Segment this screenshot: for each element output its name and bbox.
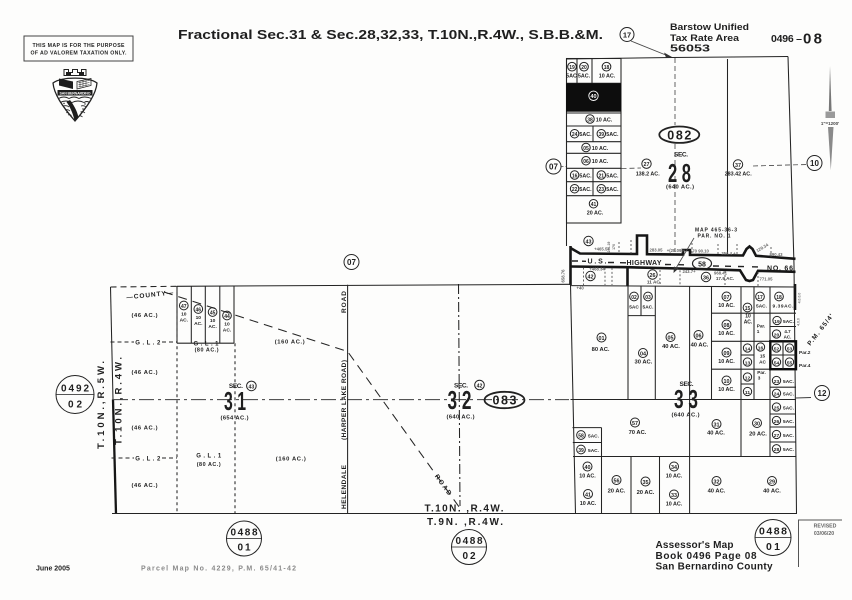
svg-text:54: 54 — [774, 360, 780, 366]
svg-text:12: 12 — [745, 375, 751, 381]
svg-text:5AC.: 5AC. — [606, 173, 619, 179]
svg-text:Assessor's Map: Assessor's Map — [656, 540, 734, 551]
svg-text:5AC.: 5AC. — [606, 132, 619, 138]
svg-text:5AC.: 5AC. — [783, 392, 794, 398]
svg-text:06: 06 — [696, 333, 702, 339]
svg-text:58: 58 — [578, 433, 584, 439]
svg-text:41: 41 — [585, 492, 591, 498]
svg-text:35: 35 — [643, 480, 649, 486]
svg-text:Tax Rate Area: Tax Rate Area — [670, 33, 740, 43]
svg-text:57: 57 — [632, 421, 638, 427]
svg-text:NO. 66: NO. 66 — [767, 266, 793, 273]
svg-text:20: 20 — [774, 332, 780, 338]
svg-text:REVISED: REVISED — [814, 524, 837, 530]
svg-text:07: 07 — [549, 163, 558, 172]
svg-text:14: 14 — [745, 346, 751, 352]
svg-text:5AC.: 5AC. — [588, 433, 599, 439]
svg-text:(HARPER LAKE ROAD): (HARPER LAKE ROAD) — [341, 360, 348, 440]
svg-text:20 AC.: 20 AC. — [608, 489, 626, 495]
svg-text:10 AC.: 10 AC. — [592, 159, 609, 165]
svg-text:32: 32 — [714, 479, 720, 485]
svg-text:22: 22 — [572, 187, 578, 193]
svg-text:(46 AC.): (46 AC.) — [132, 483, 158, 489]
svg-text:38: 38 — [587, 117, 593, 123]
svg-text:10: 10 — [724, 379, 730, 385]
svg-text:G.L.2: G.L.2 — [135, 456, 161, 462]
svg-text:17.9 AC.: 17.9 AC. — [716, 276, 734, 281]
svg-text:20 AC.: 20 AC. — [749, 432, 767, 438]
svg-text:10 AC.: 10 AC. — [580, 501, 597, 507]
svg-text:+(28.09)+: +(28.09)+ — [667, 248, 686, 253]
svg-text:3 2: 3 2 — [448, 385, 472, 415]
svg-text:5AC.: 5AC. — [783, 433, 794, 439]
svg-text:30 AC.: 30 AC. — [634, 359, 652, 365]
svg-text:(80 AC.): (80 AC.) — [195, 348, 219, 354]
svg-text:45: 45 — [210, 310, 216, 316]
svg-text:24: 24 — [572, 132, 578, 138]
svg-text:11: 11 — [745, 390, 750, 396]
svg-text:PAR. NO. 1: PAR. NO. 1 — [698, 234, 731, 240]
svg-text:Par.: Par. — [757, 370, 766, 375]
svg-text:5AC.: 5AC. — [783, 319, 794, 325]
svg-text:10 AC.: 10 AC. — [579, 474, 596, 480]
svg-text:40: 40 — [591, 94, 597, 100]
svg-text:June 2005: June 2005 — [36, 566, 70, 573]
svg-text:0488: 0488 — [231, 528, 258, 539]
svg-text:283.42 AC.: 283.42 AC. — [725, 172, 753, 178]
svg-text:5AC.: 5AC. — [783, 405, 794, 411]
svg-text:AC.: AC. — [784, 335, 792, 340]
svg-text:47: 47 — [181, 304, 187, 310]
svg-text:20 AC.: 20 AC. — [637, 490, 655, 496]
svg-text:29: 29 — [769, 479, 775, 485]
svg-text:18: 18 — [604, 65, 610, 71]
svg-text:10: 10 — [181, 312, 187, 318]
svg-text:01: 01 — [599, 336, 605, 342]
svg-text:T.9N. ,R.4W.: T.9N. ,R.4W. — [427, 517, 503, 528]
svg-text:5AC.: 5AC. — [643, 305, 654, 311]
svg-text:(640 AC.): (640 AC.) — [447, 415, 475, 421]
svg-text:23: 23 — [599, 187, 605, 193]
svg-text:40 AC.: 40 AC. — [707, 431, 725, 437]
svg-text:5AC.: 5AC. — [579, 187, 592, 193]
svg-text:33: 33 — [671, 493, 677, 499]
svg-text:(46 AC.): (46 AC.) — [132, 425, 158, 431]
svg-text:5AC.: 5AC. — [783, 447, 794, 453]
svg-text:5AC: 5AC — [629, 305, 639, 311]
svg-text:283.05: 283.05 — [650, 248, 664, 253]
svg-text:+468.34: +468.34 — [589, 267, 605, 272]
svg-text:07: 07 — [724, 295, 730, 301]
svg-text:23: 23 — [774, 379, 780, 385]
svg-text:Book 0496 Page 08: Book 0496 Page 08 — [656, 551, 757, 562]
svg-text:19: 19 — [774, 319, 780, 325]
svg-text:3 3: 3 3 — [674, 384, 698, 414]
svg-text:0496 –: 0496 – — [771, 33, 802, 45]
svg-text:18: 18 — [776, 295, 782, 301]
svg-text:20 AC.: 20 AC. — [587, 211, 604, 217]
svg-text:07: 07 — [347, 258, 356, 267]
svg-text:4.0.0: 4.0.0 — [797, 318, 801, 326]
svg-text:36: 36 — [703, 275, 709, 281]
svg-text:02: 02 — [463, 551, 476, 562]
svg-text:AC.: AC. — [208, 324, 217, 330]
svg-text:39: 39 — [578, 448, 584, 454]
svg-text:27: 27 — [774, 433, 780, 439]
svg-text:10 AC.: 10 AC. — [666, 474, 683, 480]
svg-text:5AC.: 5AC. — [783, 419, 794, 425]
svg-text:10 AC.: 10 AC. — [592, 146, 609, 152]
svg-text:G.L.1: G.L.1 — [196, 454, 222, 460]
svg-text:.70 90.10: .70 90.10 — [691, 249, 709, 254]
svg-text:HELENDALE: HELENDALE — [341, 464, 348, 509]
svg-text:658.76: 658.76 — [561, 269, 566, 283]
svg-text:04: 04 — [640, 351, 646, 357]
svg-text:San Bernardino County: San Bernardino County — [656, 562, 773, 573]
svg-text:SAN BERNARDINO: SAN BERNARDINO — [60, 91, 91, 95]
svg-text:01: 01 — [238, 543, 251, 554]
svg-text:37: 37 — [735, 163, 741, 169]
svg-text:26: 26 — [774, 419, 780, 425]
svg-text:0492: 0492 — [61, 384, 89, 395]
svg-text:11 AC.: 11 AC. — [647, 280, 661, 285]
svg-text:(80 AC.): (80 AC.) — [197, 462, 221, 468]
svg-text:20: 20 — [581, 65, 587, 71]
svg-text:Fractional Sec.31 & Sec.28,32,: Fractional Sec.31 & Sec.28,32,33, T.10N.… — [178, 27, 603, 42]
svg-text:AC.: AC. — [744, 320, 753, 326]
svg-text:(654 AC.): (654 AC.) — [221, 416, 249, 422]
svg-text:40 AC.: 40 AC. — [662, 344, 680, 350]
svg-text:10 AC.: 10 AC. — [718, 303, 735, 309]
svg-text:24: 24 — [774, 392, 780, 398]
svg-text:10 AC.: 10 AC. — [718, 359, 735, 365]
svg-text:06: 06 — [583, 159, 589, 165]
svg-text:43: 43 — [249, 384, 255, 390]
svg-text:170: 170 — [612, 244, 616, 250]
svg-text:5AC.: 5AC. — [606, 187, 619, 193]
svg-text:10 AC.: 10 AC. — [718, 331, 735, 337]
svg-text:16: 16 — [572, 173, 578, 179]
svg-text:08: 08 — [724, 323, 730, 329]
svg-text:80 AC.: 80 AC. — [592, 347, 610, 353]
svg-text:Barstow Unified: Barstow Unified — [670, 22, 749, 32]
svg-text:AC: AC — [759, 360, 766, 365]
svg-text:10 AC.: 10 AC. — [718, 387, 735, 393]
svg-text:(160 AC.): (160 AC.) — [275, 340, 305, 346]
svg-text:05: 05 — [668, 335, 674, 341]
svg-text:AC.: AC. — [180, 318, 189, 324]
svg-text:02: 02 — [631, 295, 637, 301]
svg-text:58: 58 — [698, 261, 706, 268]
svg-text:(46 AC.): (46 AC.) — [132, 313, 158, 319]
svg-text:5AC.: 5AC. — [588, 448, 599, 454]
svg-text:10: 10 — [810, 159, 819, 168]
svg-text:1"=1200': 1"=1200' — [821, 121, 839, 126]
svg-text:56: 56 — [614, 478, 620, 484]
svg-text:46: 46 — [196, 307, 202, 313]
svg-text:1: 1 — [757, 329, 760, 334]
svg-text:40: 40 — [585, 465, 591, 471]
svg-text:34: 34 — [671, 465, 677, 471]
svg-text:5AC.: 5AC. — [783, 379, 794, 385]
svg-text:53: 53 — [787, 346, 793, 352]
svg-text:15: 15 — [745, 306, 751, 312]
svg-text:21: 21 — [599, 173, 605, 179]
svg-text:356.4 +: 356.4 + — [721, 251, 736, 256]
svg-text:138.2 AC.: 138.2 AC. — [636, 172, 661, 178]
svg-text:+40: +40 — [577, 286, 585, 291]
svg-text:12: 12 — [818, 389, 827, 398]
svg-text:Par.4: Par.4 — [799, 363, 811, 369]
svg-text:G.L.2: G.L.2 — [135, 340, 161, 346]
svg-text:17: 17 — [757, 295, 763, 301]
svg-text:083: 083 — [493, 394, 517, 408]
svg-text:(640 AC.): (640 AC.) — [672, 413, 700, 419]
svg-text:09: 09 — [724, 351, 730, 357]
svg-text:5AC.: 5AC. — [756, 304, 767, 310]
svg-text:Parcel Map No. 4229, P.M. 65/4: Parcel Map No. 4229, P.M. 65/41-42 — [141, 566, 296, 573]
svg-text:19: 19 — [569, 65, 575, 71]
svg-text:03/06/20: 03/06/20 — [814, 531, 834, 537]
svg-text:52: 52 — [774, 346, 780, 352]
svg-text:42: 42 — [477, 383, 483, 389]
svg-text:10 AC.: 10 AC. — [599, 74, 616, 80]
svg-text:0488: 0488 — [456, 536, 483, 547]
svg-text:17: 17 — [623, 31, 631, 40]
svg-text:9.39AC.: 9.39AC. — [773, 304, 794, 310]
svg-text:4.7: 4.7 — [784, 329, 791, 334]
svg-text:70 AC.: 70 AC. — [629, 430, 647, 436]
svg-text:56053: 56053 — [670, 44, 711, 55]
svg-text:T.10N.,R.5W.: T.10N.,R.5W. — [96, 361, 107, 449]
svg-text:40 AC.: 40 AC. — [763, 489, 781, 495]
svg-text:968.41: 968.41 — [714, 271, 728, 276]
svg-text:27: 27 — [644, 162, 650, 168]
svg-text:40 AC.: 40 AC. — [708, 489, 726, 495]
svg-text:10 AC.: 10 AC. — [596, 118, 613, 124]
svg-text:10: 10 — [224, 322, 230, 328]
svg-text:15: 15 — [760, 354, 766, 359]
svg-text:(46 AC.): (46 AC.) — [132, 370, 158, 376]
svg-text:0488: 0488 — [759, 526, 787, 538]
svg-text:3: 3 — [758, 376, 761, 381]
svg-text:OF AD VALOREM TAXATION ONLY.: OF AD VALOREM TAXATION ONLY. — [31, 51, 128, 57]
svg-text:03: 03 — [645, 295, 651, 301]
svg-text:5AC.: 5AC. — [579, 132, 592, 138]
svg-text:AC.: AC. — [223, 328, 232, 334]
svg-text:AC.: AC. — [194, 321, 203, 327]
svg-text:5AC.: 5AC. — [579, 173, 592, 179]
svg-text:05: 05 — [583, 146, 589, 152]
svg-text:5AC: 5AC — [566, 74, 577, 80]
svg-text:10 AC.: 10 AC. — [666, 502, 683, 508]
svg-text:43: 43 — [586, 239, 592, 245]
svg-text:28: 28 — [774, 447, 780, 453]
svg-text:4.0.0.0: 4.0.0.0 — [798, 293, 802, 304]
svg-text:T.10N.,R.4W.: T.10N.,R.4W. — [114, 357, 125, 445]
svg-text:44: 44 — [224, 314, 230, 320]
svg-text:10: 10 — [196, 315, 202, 321]
svg-text:(640 AC.): (640 AC.) — [666, 185, 694, 191]
svg-text:42: 42 — [588, 274, 594, 280]
svg-text:082: 082 — [667, 128, 691, 142]
svg-text:771.05: 771.05 — [760, 277, 774, 282]
svg-text:T.10N. ,R.4W.: T.10N. ,R.4W. — [425, 504, 504, 515]
svg-text:25: 25 — [774, 405, 780, 411]
svg-text:26: 26 — [650, 273, 656, 279]
svg-text:39: 39 — [599, 132, 605, 138]
svg-text:40 AC.: 40 AC. — [691, 343, 709, 349]
svg-text:41: 41 — [591, 202, 597, 208]
svg-text:55: 55 — [787, 360, 793, 366]
svg-text:243.7+: 243.7+ — [682, 269, 696, 274]
svg-text:HIGHWAY: HIGHWAY — [627, 260, 662, 267]
svg-text:(160 AC.): (160 AC.) — [276, 457, 306, 463]
svg-text:16: 16 — [758, 345, 764, 351]
svg-text:5AC.: 5AC. — [578, 74, 591, 80]
svg-text:3 1: 3 1 — [224, 386, 246, 416]
svg-text:13: 13 — [745, 360, 751, 366]
svg-text:ROAD: ROAD — [341, 291, 348, 313]
svg-text:THIS MAP IS FOR THE PURPOSE: THIS MAP IS FOR THE PURPOSE — [33, 43, 126, 49]
svg-text:Par.2: Par.2 — [799, 350, 811, 356]
svg-text:890.43: 890.43 — [770, 252, 784, 257]
svg-text:Par.: Par. — [757, 324, 766, 329]
svg-text:10: 10 — [210, 318, 216, 324]
svg-text:31: 31 — [714, 422, 720, 428]
svg-text:30: 30 — [754, 421, 760, 427]
svg-text:281.19: 281.19 — [607, 242, 611, 253]
svg-text:2 8: 2 8 — [668, 158, 691, 188]
